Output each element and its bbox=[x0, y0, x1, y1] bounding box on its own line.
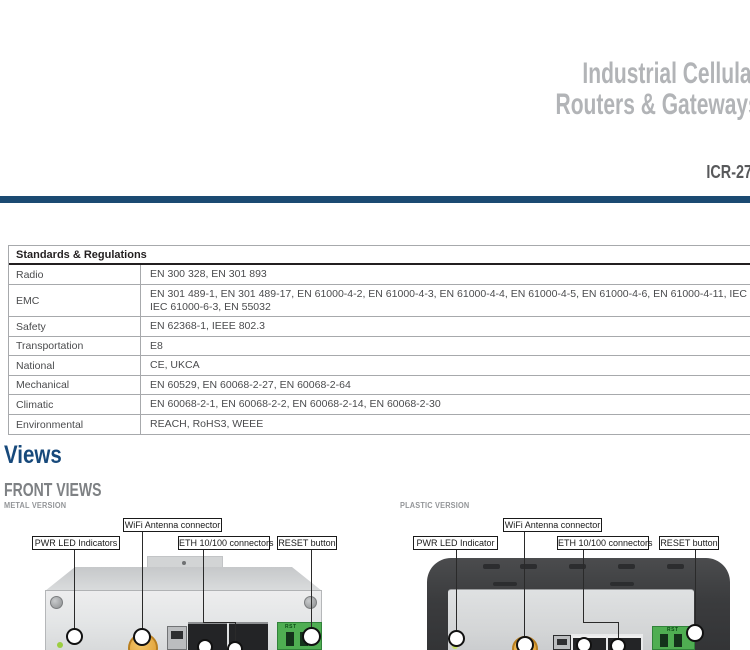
callout-dot-pwr-metal bbox=[66, 628, 83, 645]
row-label: Radio bbox=[9, 265, 141, 284]
callout-wifi-antenna-metal: WiFi Antenna connector bbox=[123, 518, 222, 532]
callout-line bbox=[311, 550, 312, 629]
row-value: E8 bbox=[141, 337, 750, 355]
row-value: REACH, RoHS3, WEEE bbox=[141, 415, 750, 434]
router-front-view-plastic: RST bbox=[427, 556, 730, 650]
document-title: Industrial Cellular Routers & Gateways bbox=[556, 58, 750, 120]
table-row-national: National CE, UKCA bbox=[9, 356, 750, 376]
table-row-emc: EMC EN 301 489-1, EN 301 489-17, EN 6100… bbox=[9, 285, 750, 317]
header-divider bbox=[0, 196, 750, 203]
callout-dot-eth2-metal bbox=[227, 641, 243, 650]
product-model: ICR-27 bbox=[706, 162, 750, 183]
callout-wifi-antenna-plastic: WiFi Antenna connector bbox=[503, 518, 602, 532]
terminal-label: RST bbox=[667, 627, 679, 633]
vent-slot bbox=[610, 582, 634, 586]
row-label: Mechanical bbox=[9, 376, 141, 394]
callout-dot-wifi-plastic bbox=[516, 636, 534, 650]
usb-slot bbox=[557, 639, 567, 645]
callout-line bbox=[583, 622, 619, 623]
vent-slot bbox=[483, 564, 500, 569]
table-row-radio: Radio EN 300 328, EN 301 893 bbox=[9, 265, 750, 285]
callout-reset-metal: RESET button bbox=[277, 536, 337, 550]
callout-dot-reset-plastic bbox=[686, 624, 704, 642]
callout-line bbox=[142, 531, 143, 630]
table-row-safety: Safety EN 62368-1, IEEE 802.3 bbox=[9, 317, 750, 337]
terminal-slot bbox=[660, 634, 668, 647]
callout-dot-wifi-metal bbox=[133, 628, 151, 646]
section-title-views: Views bbox=[4, 441, 62, 470]
usb-port bbox=[167, 626, 187, 650]
vent-slot bbox=[493, 582, 517, 586]
row-value: EN 62368-1, IEEE 802.3 bbox=[141, 317, 750, 336]
document-title-line2: Routers & Gateways bbox=[556, 89, 750, 120]
row-value: EN 301 489-1, EN 301 489-17, EN 61000-4-… bbox=[141, 285, 750, 316]
vent-slot bbox=[618, 564, 635, 569]
callout-dot-reset-metal bbox=[302, 627, 321, 646]
table-row-environmental: Environmental REACH, RoHS3, WEEE bbox=[9, 415, 750, 434]
callout-line bbox=[583, 550, 584, 622]
callout-dot-eth2-plastic bbox=[610, 638, 626, 650]
callout-eth-plastic: ETH 10/100 connectors bbox=[557, 536, 649, 550]
usb-port bbox=[553, 635, 571, 650]
corner-screw bbox=[50, 596, 63, 609]
callout-line bbox=[203, 622, 236, 623]
callout-line bbox=[74, 550, 75, 630]
callout-pwr-led-metal: PWR LED Indicators bbox=[32, 536, 120, 550]
callout-dot-eth1-metal bbox=[197, 639, 213, 650]
table-row-mechanical: Mechanical EN 60529, EN 60068-2-27, EN 6… bbox=[9, 376, 750, 395]
terminal-slot bbox=[674, 634, 682, 647]
standards-table: Standards & Regulations Radio EN 300 328… bbox=[8, 245, 750, 435]
pwr-led bbox=[57, 642, 63, 648]
datasheet-page: Industrial Cellular Routers & Gateways I… bbox=[0, 0, 750, 650]
document-title-line1: Industrial Cellular bbox=[556, 58, 750, 89]
callout-line bbox=[235, 622, 236, 642]
vent-slot bbox=[667, 564, 684, 569]
table-row-climatic: Climatic EN 60068-2-1, EN 60068-2-2, EN … bbox=[9, 395, 750, 415]
callout-dot-eth1-plastic bbox=[576, 637, 592, 650]
terminal-slot bbox=[286, 632, 294, 646]
row-value: CE, UKCA bbox=[141, 356, 750, 375]
din-clip bbox=[147, 556, 223, 568]
callout-dot-pwr-plastic bbox=[448, 630, 465, 647]
metal-version-label: METAL VERSION bbox=[4, 501, 66, 510]
callout-line bbox=[456, 550, 457, 632]
row-label: EMC bbox=[9, 285, 141, 316]
row-label: Transportation bbox=[9, 337, 141, 355]
callout-eth-metal: ETH 10/100 connectors bbox=[178, 536, 270, 550]
chassis-top bbox=[45, 567, 322, 591]
row-label: Safety bbox=[9, 317, 141, 336]
subsection-front-views: FRONT VIEWS bbox=[4, 480, 102, 501]
callout-line bbox=[203, 550, 204, 622]
callout-line bbox=[524, 532, 525, 638]
row-label: National bbox=[9, 356, 141, 375]
plastic-version-label: PLASTIC VERSION bbox=[400, 501, 469, 510]
table-header: Standards & Regulations bbox=[9, 246, 750, 265]
terminal-label: RST bbox=[285, 624, 297, 630]
usb-slot bbox=[171, 631, 183, 639]
callout-pwr-led-plastic: PWR LED Indicator bbox=[413, 536, 498, 550]
row-label: Environmental bbox=[9, 415, 141, 434]
table-row-transportation: Transportation E8 bbox=[9, 337, 750, 356]
callout-line bbox=[695, 550, 696, 626]
row-label: Climatic bbox=[9, 395, 141, 414]
screw-dot bbox=[182, 561, 186, 565]
router-front-view-metal: RST bbox=[45, 556, 325, 650]
row-value: EN 60529, EN 60068-2-27, EN 60068-2-64 bbox=[141, 376, 750, 394]
callout-reset-plastic: RESET button bbox=[659, 536, 719, 550]
row-value: EN 60068-2-1, EN 60068-2-2, EN 60068-2-1… bbox=[141, 395, 750, 414]
vent-slot bbox=[520, 564, 537, 569]
row-value: EN 300 328, EN 301 893 bbox=[141, 265, 750, 284]
callout-line bbox=[618, 622, 619, 639]
